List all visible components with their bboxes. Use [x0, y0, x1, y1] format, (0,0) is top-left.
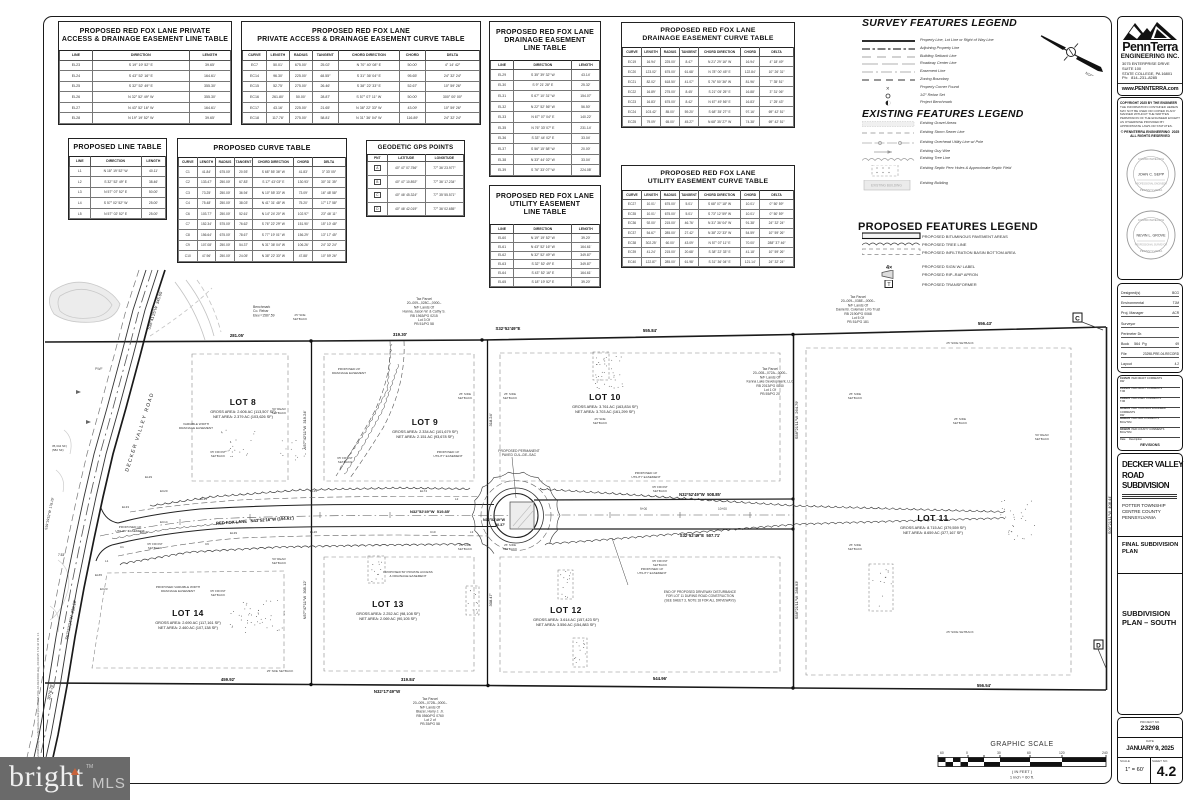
svg-text:EL33: EL33: [122, 505, 129, 509]
svg-text:L3: L3: [470, 530, 474, 534]
svg-text:459.92′: 459.92′: [221, 677, 235, 682]
svg-text:556.54′: 556.54′: [977, 683, 991, 688]
svg-text:D: D: [1096, 643, 1101, 650]
svg-text:25′ SIDE SETBACK: 25′ SIDE SETBACK: [946, 630, 974, 634]
svg-text:319.30′: 319.30′: [393, 332, 407, 337]
svg-text:S09°21′11″W 408.44′: S09°21′11″W 408.44′: [1107, 496, 1112, 535]
svg-text:25′ SDE SETBACK: 25′ SDE SETBACK: [267, 669, 294, 673]
svg-text:SETBACK: SETBACK: [458, 396, 473, 400]
svg-text:30: 30: [997, 751, 1001, 755]
svg-text:PB 55/PG 20: PB 55/PG 20: [760, 392, 780, 396]
svg-text:P:\23298\Design\Land\Files\Rec: P:\23298\Design\Land\Files\Recorded plan…: [36, 632, 40, 760]
svg-text:GROSS AREA: 2.252 AC (98,108 S: GROSS AREA: 2.252 AC (98,108 SF): [356, 612, 420, 616]
svg-text:9+00: 9+00: [640, 507, 647, 511]
svg-text:SETBACK: SETBACK: [848, 396, 863, 400]
svg-text:PB 51/PG 181: PB 51/PG 181: [847, 320, 869, 324]
svg-text:PB 35/PG 58: PB 35/PG 58: [420, 722, 440, 726]
svg-text:60: 60: [1027, 751, 1031, 755]
svg-text:(SEE SHEET 3, NOTE 18 FOR ALL: (SEE SHEET 3, NOTE 18 FOR ALL DRIVEWAYS): [664, 598, 735, 602]
svg-text:25′ SIDE SETBACK: 25′ SIDE SETBACK: [946, 341, 974, 345]
svg-text:SETBACK: SETBACK: [293, 317, 308, 321]
svg-text:SETBACK: SETBACK: [211, 593, 226, 597]
svg-text:SETBACK: SETBACK: [848, 547, 863, 551]
svg-text:319.84′: 319.84′: [401, 677, 415, 682]
svg-text:C1: C1: [120, 545, 124, 549]
svg-text:GROSS AREA: 8.715 AC (379,559: GROSS AREA: 8.715 AC (379,559 SF): [900, 526, 967, 530]
svg-text:SETBACK: SETBACK: [458, 547, 473, 551]
svg-text:SETBACK: SETBACK: [272, 561, 287, 565]
svg-text:EL26: EL26: [310, 530, 317, 534]
svg-text:SETBACK: SETBACK: [503, 396, 518, 400]
svg-text:SETBACK: SETBACK: [653, 489, 668, 493]
svg-text:DRAINAGE EASEMENT: DRAINAGE EASEMENT: [332, 371, 366, 375]
svg-text:EL29: EL29: [145, 475, 152, 479]
svg-text:120: 120: [1059, 751, 1065, 755]
svg-text:S38°41′25″W 345.65′: S38°41′25″W 345.65′: [146, 290, 163, 330]
svg-text:( IN FEET ): ( IN FEET ): [1012, 769, 1033, 774]
svg-text:LOT 10: LOT 10: [589, 392, 621, 402]
svg-text:EL74: EL74: [420, 489, 427, 493]
svg-text:RED FOX LANE N43°52′16″W (15: RED FOX LANE N43°52′16″W (154.61′): [216, 515, 295, 525]
svg-text:0: 0: [966, 751, 968, 755]
svg-text:LOT 14: LOT 14: [172, 608, 204, 618]
svg-text:UTILITY EASEMENT: UTILITY EASEMENT: [631, 475, 660, 479]
svg-text:LOT 13: LOT 13: [372, 599, 404, 609]
svg-text:DRAINAGE EASEMENT: DRAINAGE EASEMENT: [179, 426, 213, 430]
svg-text:EC14: EC14: [160, 520, 168, 524]
svg-text:& DRAINAGE EASEMENT: & DRAINAGE EASEMENT: [390, 574, 427, 578]
svg-text:SETBACK: SETBACK: [148, 546, 163, 550]
svg-text:Elev.=1587.59: Elev.=1587.59: [253, 313, 275, 317]
svg-text:PAVED CUL–DE–SAC: PAVED CUL–DE–SAC: [502, 453, 537, 457]
svg-text:LOT 9: LOT 9: [412, 417, 439, 427]
svg-text:N32°52′49″W: N32°52′49″W: [483, 518, 506, 522]
svg-text:7.53′: 7.53′: [58, 553, 65, 557]
svg-text:10+00: 10+00: [718, 507, 727, 511]
svg-text:EC20: EC20: [160, 489, 168, 493]
svg-text:PWF: PWF: [95, 367, 103, 371]
svg-text:EL35: EL35: [200, 497, 207, 501]
svg-text:GROSS AREA: 2.606 AC (113,507: GROSS AREA: 2.606 AC (113,507 SF): [210, 410, 276, 414]
svg-text:UTILITY EASEMENT: UTILITY EASEMENT: [433, 454, 462, 458]
svg-text:LOT 12: LOT 12: [550, 605, 582, 615]
svg-text:SETBACK: SETBACK: [338, 460, 353, 464]
svg-text:S32°52′49″E 507.71′: S32°52′49″E 507.71′: [680, 533, 720, 538]
svg-text:UTILITY EASEMENT: UTILITY EASEMENT: [637, 571, 666, 575]
svg-text:SETBACK: SETBACK: [211, 454, 226, 458]
svg-text:NET AREA: 2.069 AC (90,105 SF): NET AREA: 2.069 AC (90,105 SF): [359, 617, 417, 621]
svg-text:L1: L1: [105, 559, 109, 563]
svg-text:NET AREA: 3.556 AC (154,883 SF: NET AREA: 3.556 AC (154,883 SF): [536, 623, 596, 627]
svg-text:3078.20′: 3078.20′: [46, 683, 54, 700]
svg-text:240: 240: [1102, 751, 1108, 755]
svg-text:EL25: EL25: [310, 489, 317, 493]
svg-text:60: 60: [940, 751, 944, 755]
svg-text:555.84′: 555.84′: [643, 328, 657, 333]
svg-text:308.47′: 308.47′: [488, 593, 493, 606]
svg-text:318.24′: 318.24′: [488, 413, 493, 426]
svg-text:SETBACK: SETBACK: [953, 421, 968, 425]
svg-text:NET AREA: 2.151 AC (93,678 SF): NET AREA: 2.151 AC (93,678 SF): [396, 435, 454, 439]
svg-text:L2: L2: [455, 497, 459, 501]
svg-text:(582 SF): (582 SF): [52, 448, 64, 452]
svg-text:N32°52′49″W 508.85′: N32°52′49″W 508.85′: [679, 492, 721, 497]
svg-text:S32°52′49″E: S32°52′49″E: [496, 326, 521, 331]
svg-text:544.96′: 544.96′: [653, 676, 667, 681]
svg-text:EL39: EL39: [230, 531, 237, 535]
svg-text:281.05′: 281.05′: [230, 333, 244, 338]
svg-text:GROSS AREA: 3.761 AC (163,834: GROSS AREA: 3.761 AC (163,834 SF): [572, 405, 639, 409]
svg-text:EC19: EC19: [140, 530, 148, 534]
svg-text:SETBACK: SETBACK: [272, 411, 287, 415]
svg-text:DECKER VALLEY ROAD: DECKER VALLEY ROAD: [124, 391, 156, 472]
svg-text:LOT 11: LOT 11: [917, 513, 948, 523]
svg-text:1 inch = 60 ft.: 1 inch = 60 ft.: [1010, 775, 1034, 780]
svg-text:GRAPHIC SCALE: GRAPHIC SCALE: [990, 741, 1053, 748]
svg-text:S19°19′52″W 178.10′: S19°19′52″W 178.10′: [44, 497, 55, 530]
svg-text:SETBACK: SETBACK: [503, 547, 518, 551]
svg-text:GROSS AREA: 3.614 AC (157,423: GROSS AREA: 3.614 AC (157,423 SF): [533, 618, 600, 622]
svg-text:N57°47′11″W 305.12′: N57°47′11″W 305.12′: [302, 580, 307, 619]
svg-text:SETBACK: SETBACK: [1035, 437, 1050, 441]
svg-text:EC23: EC23: [100, 587, 108, 591]
svg-text:556.43′: 556.43′: [978, 321, 992, 326]
svg-text:NET AREA: 2.460 AC (107,138 SF: NET AREA: 2.460 AC (107,138 SF): [158, 626, 218, 630]
svg-text:C10: C10: [430, 530, 436, 534]
svg-text:40.37′: 40.37′: [495, 523, 505, 527]
svg-text:NET AREA: 3.703 AC (161,299 SF: NET AREA: 3.703 AC (161,299 SF): [575, 410, 635, 414]
svg-text:LOT 8: LOT 8: [230, 397, 257, 407]
svg-text:C9: C9: [205, 542, 209, 546]
svg-text:DRAINAGE EASEMENT: DRAINAGE EASEMENT: [161, 589, 195, 593]
svg-text:GROSS AREA: 2.334 AC (101,679: GROSS AREA: 2.334 AC (101,679 SF): [392, 430, 459, 434]
svg-text:NET AREA: 2.379 AC (103,626 SF: NET AREA: 2.379 AC (103,626 SF): [213, 415, 273, 419]
svg-text:N57°42′11″W 319.24′: N57°42′11″W 319.24′: [302, 410, 307, 449]
svg-text:S58°21′11″W 288.93′: S58°21′11″W 288.93′: [794, 581, 799, 620]
svg-text:N32°52′49″W 519.85′: N32°52′49″W 519.85′: [410, 509, 450, 514]
svg-text:S58°21′11″W 264.79′: S58°21′11″W 264.79′: [794, 401, 799, 440]
svg-text:SETBACK: SETBACK: [593, 421, 608, 425]
svg-text:NET AREA: 8.659 AC (377,167 SF: NET AREA: 8.659 AC (377,167 SF): [903, 531, 963, 535]
svg-text:EL65: EL65: [95, 573, 102, 577]
svg-text:N32°17′49″W: N32°17′49″W: [374, 689, 401, 694]
svg-text:C: C: [1075, 316, 1080, 323]
svg-text:GROSS AREA: 2.690 AC (117,161: GROSS AREA: 2.690 AC (117,161 SF): [155, 621, 221, 625]
svg-text:PB 51/PG 58: PB 51/PG 58: [414, 322, 434, 326]
